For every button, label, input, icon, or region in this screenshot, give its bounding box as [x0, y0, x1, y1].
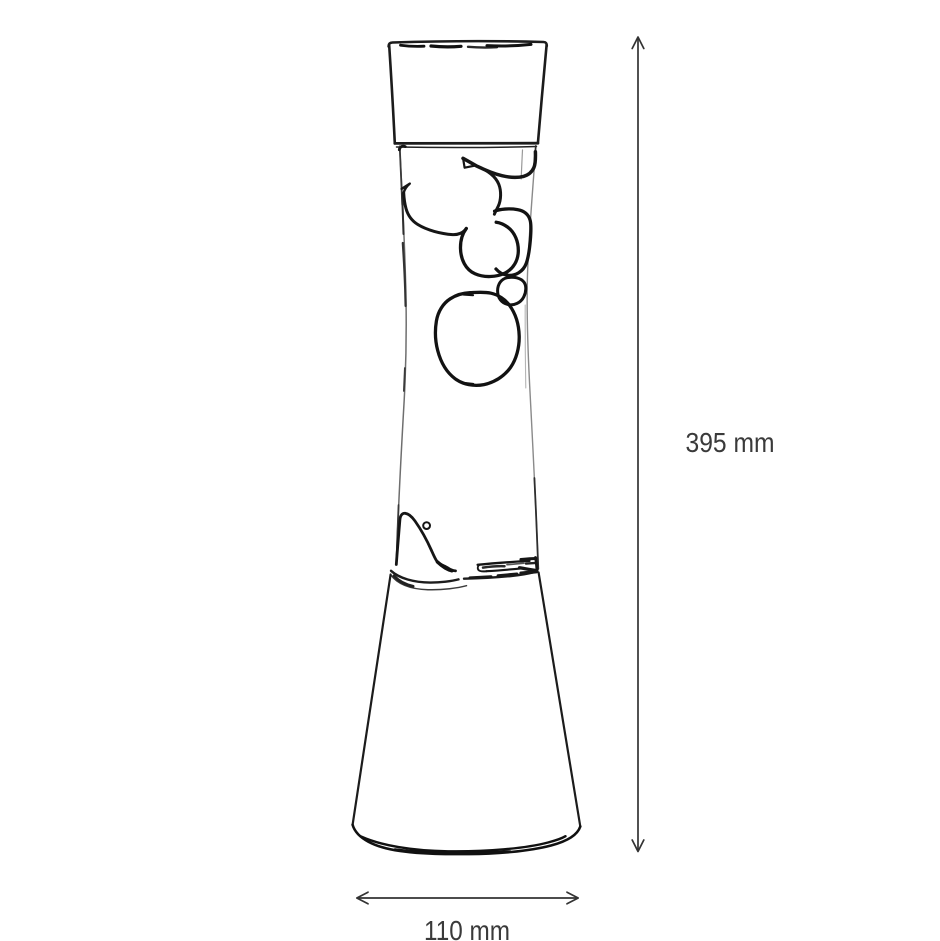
svg-text:110 mm: 110 mm — [424, 915, 510, 941]
svg-text:395 mm: 395 mm — [686, 427, 775, 458]
